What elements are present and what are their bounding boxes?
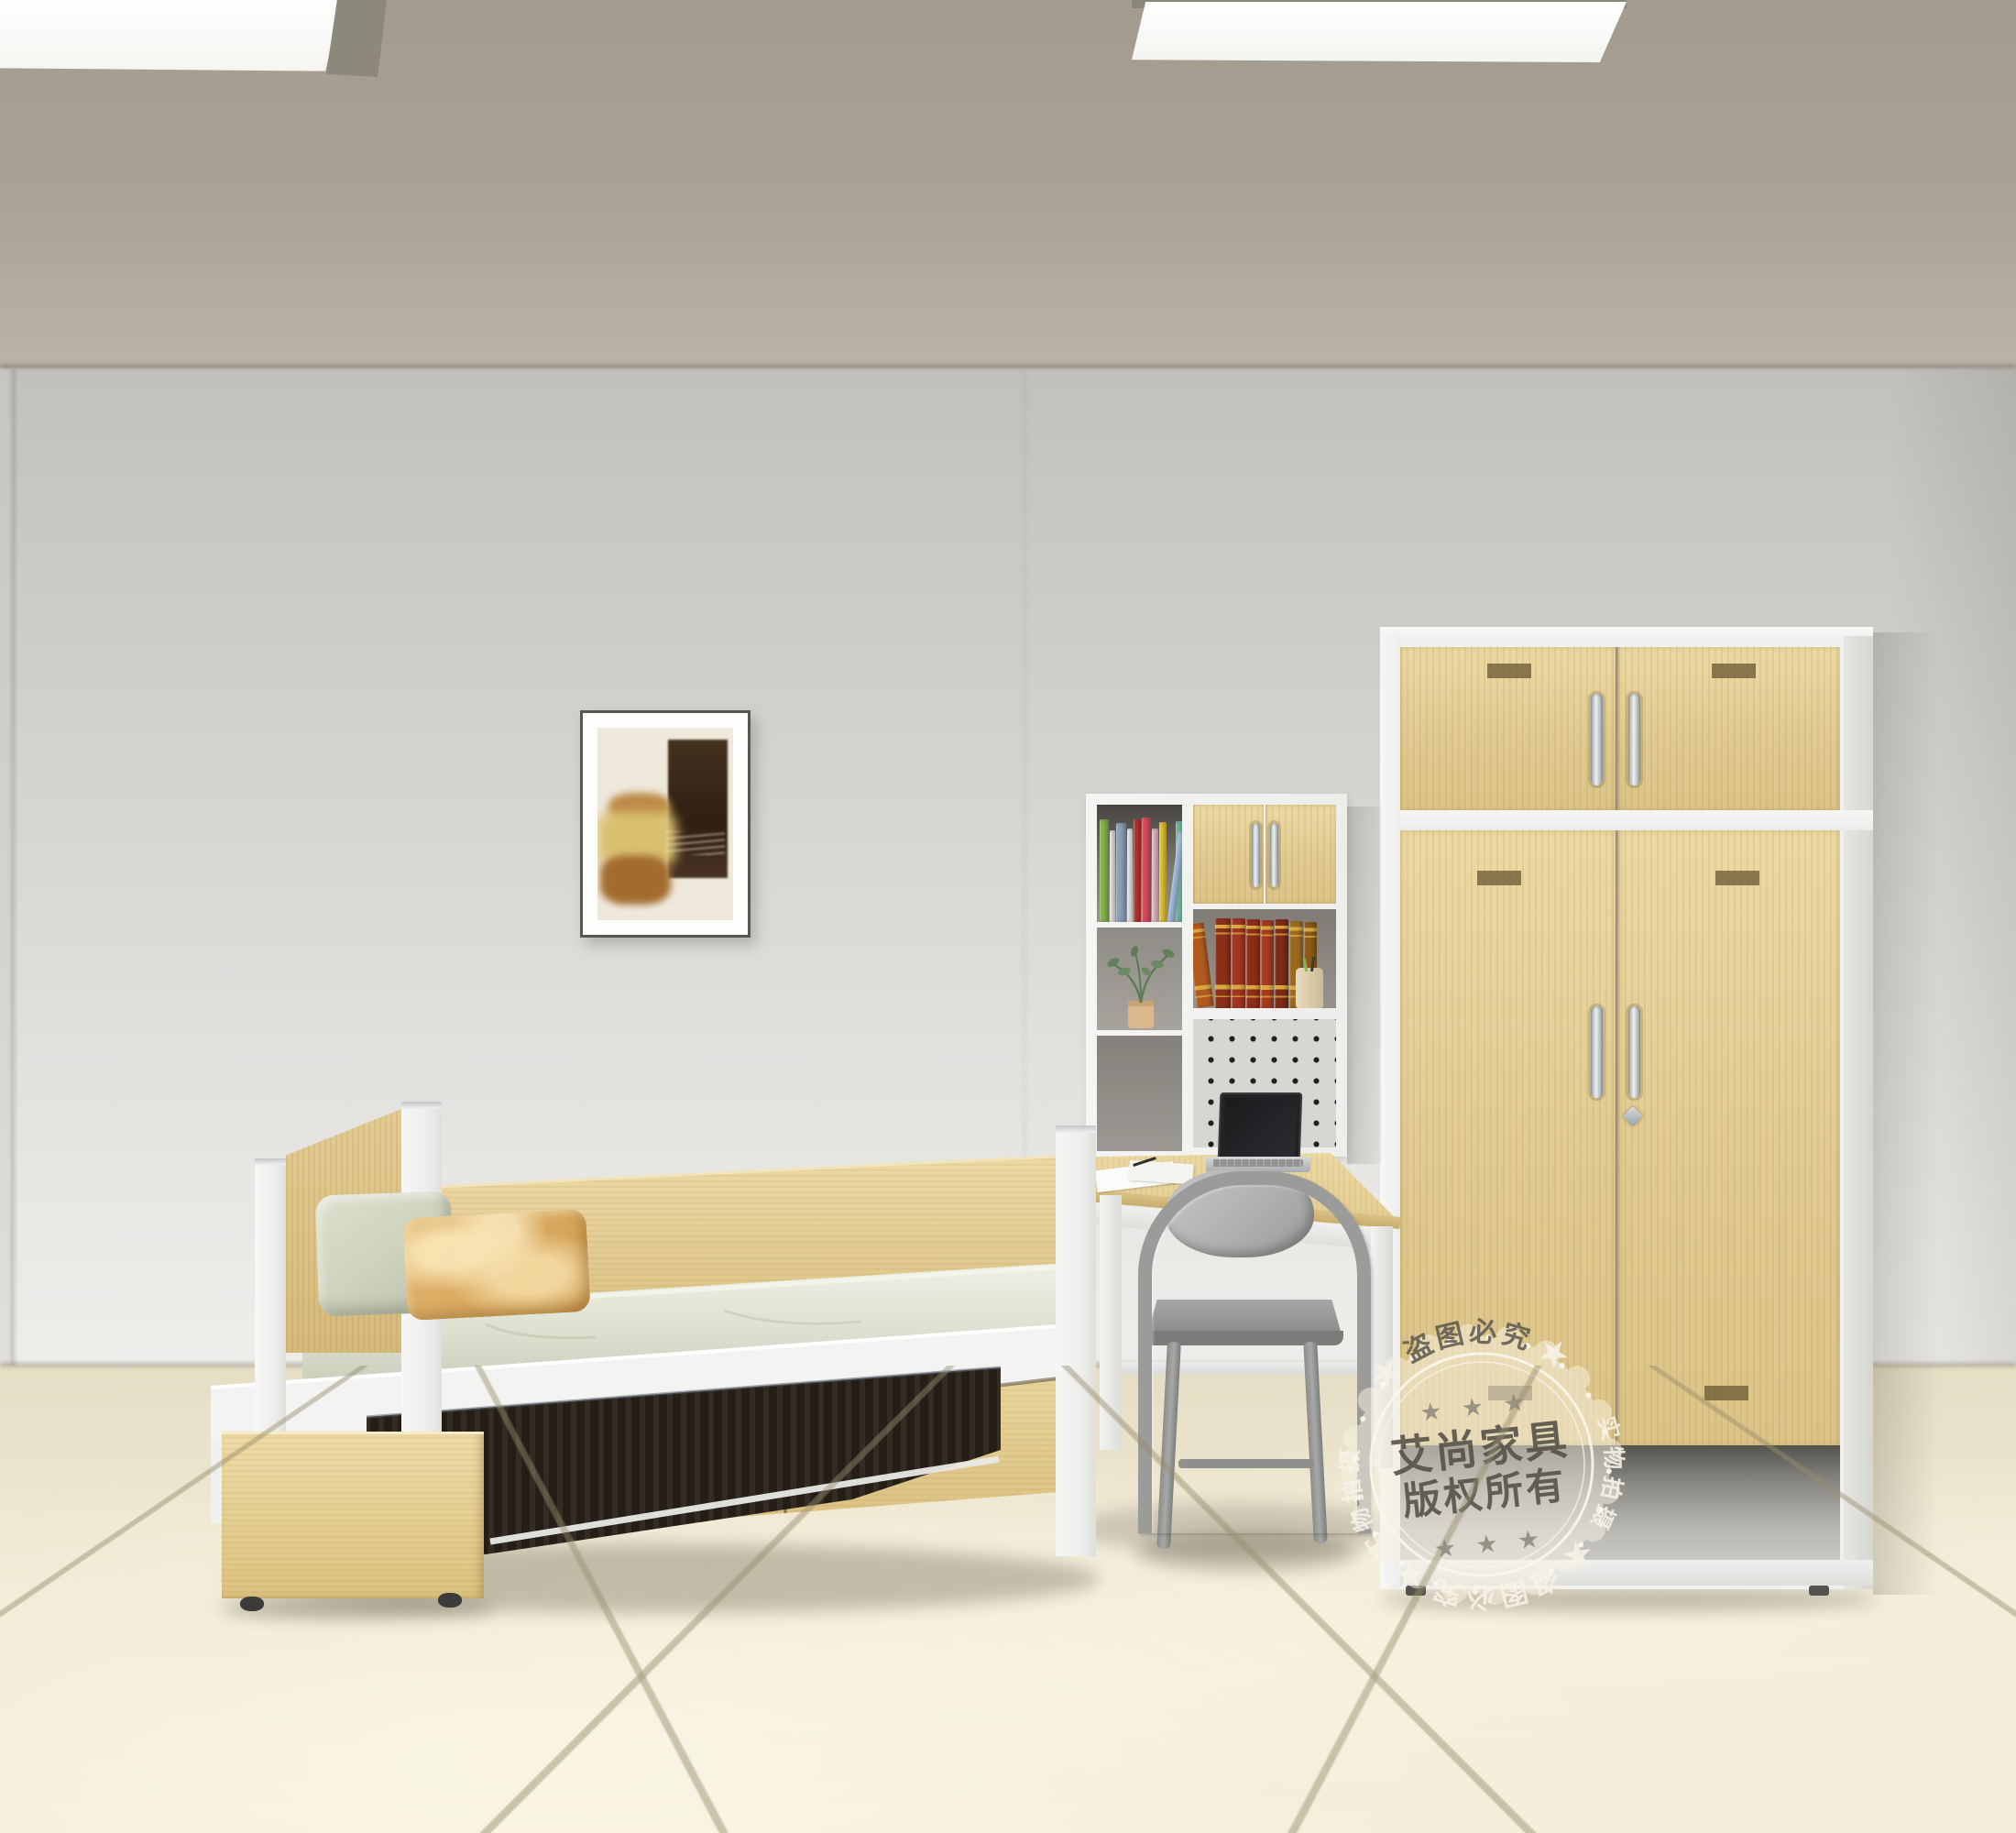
watermark-stamp: ★ ★盗图必究★ ★ ★ ★盗图必究★ ★ 实物拍摄 实物拍摄 ★ ★ ★ 艾尚…: [1319, 1301, 1645, 1628]
book-spine: [1116, 823, 1126, 922]
book-spine: [1152, 829, 1158, 922]
book-spine: [1100, 819, 1109, 922]
pen-holder: [1296, 968, 1323, 1008]
rear-post-cap: [255, 1158, 286, 1165]
book-spine: [1159, 822, 1167, 922]
book-spine: [1127, 829, 1133, 922]
book-spine: [1232, 918, 1245, 1008]
plant: [1104, 935, 1178, 1030]
hutch-empty-compartment: [1097, 1036, 1182, 1151]
room-scene: ★ ★盗图必究★ ★ ★ ★盗图必究★ ★ 实物拍摄 实物拍摄 ★ ★ ★ 艾尚…: [0, 0, 2016, 1833]
hutch-colorful-books: [1100, 805, 1182, 922]
book-spine: [1110, 830, 1115, 922]
book-spine: [1193, 922, 1214, 1008]
book-spine: [1134, 819, 1141, 922]
hutch-books-compartment: [1097, 805, 1182, 922]
hutch-plant-compartment: [1097, 927, 1182, 1030]
trundle-caster-left: [240, 1597, 264, 1611]
book-spine: [1275, 919, 1288, 1008]
book-spine: [1215, 918, 1231, 1008]
foot-post-cap: [1056, 1125, 1096, 1133]
pillow-tan: [402, 1209, 591, 1321]
hutch-cabinet-handle-left: [1252, 823, 1260, 887]
hutch-classics-compartment: [1193, 909, 1336, 1008]
trundle-caster-right: [438, 1593, 462, 1608]
trundle-front-panel: [222, 1432, 484, 1598]
hutch-cabinet-handle-right: [1270, 823, 1278, 887]
laptop-keyboard: [1213, 1159, 1303, 1167]
laptop-display: [1223, 1098, 1297, 1157]
laptop-screen: [1218, 1092, 1303, 1162]
front-post-cap: [401, 1102, 442, 1109]
desk-leg-left: [1100, 1195, 1122, 1450]
book-spine: [1246, 919, 1260, 1008]
book-spine: [1261, 920, 1274, 1008]
bed-foot-post: [1056, 1125, 1096, 1556]
book-spine: [1142, 818, 1151, 922]
